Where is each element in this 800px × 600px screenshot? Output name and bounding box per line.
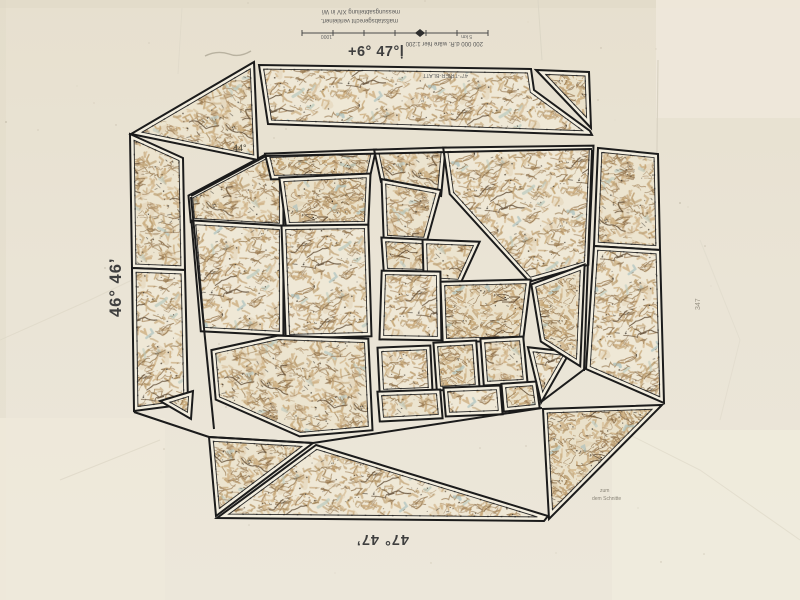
svg-text:+6° 47°ļ: +6° 47°ļ bbox=[348, 44, 404, 60]
svg-text:messungsabteilung XIV in Wi: messungsabteilung XIV in Wi bbox=[322, 8, 400, 14]
svg-text:46° 46ʼ: 46° 46ʼ bbox=[107, 258, 125, 317]
svg-text:dem Schnitte: dem Schnitte bbox=[592, 496, 621, 502]
svg-text:5 km: 5 km bbox=[461, 33, 472, 39]
svg-text:47° 47ʼ: 47° 47ʼ bbox=[356, 531, 409, 547]
svg-text:347: 347 bbox=[695, 298, 702, 310]
svg-text:200 000 d.R. wäre hier 1:200: 200 000 d.R. wäre hier 1:200 bbox=[405, 40, 483, 46]
svg-text:47°-TRIER-BLATT: 47°-TRIER-BLATT bbox=[422, 72, 468, 78]
svg-text:1000: 1000 bbox=[321, 33, 332, 39]
svg-text:44°: 44° bbox=[233, 143, 247, 153]
svg-text:maßstabsgerecht verkleinert.: maßstabsgerecht verkleinert. bbox=[320, 17, 398, 23]
svg-text:zum: zum bbox=[600, 488, 609, 494]
